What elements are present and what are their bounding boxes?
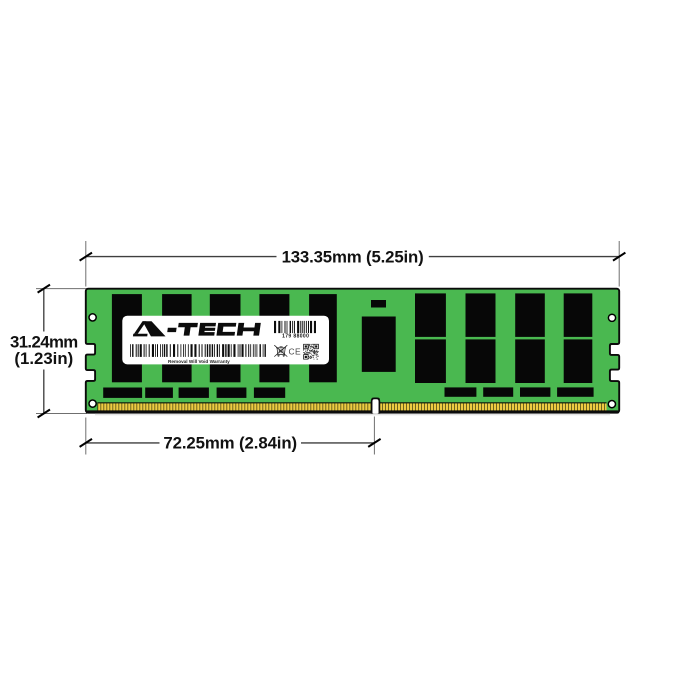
svg-text:Removal Will Void Warranty: Removal Will Void Warranty [168,359,230,364]
svg-text:72.25mm (2.84in): 72.25mm (2.84in) [163,434,297,453]
svg-text:(1.23in): (1.23in) [14,349,73,368]
svg-text:179 88000: 179 88000 [282,333,309,339]
svg-text:CE: CE [288,346,301,356]
svg-text:133.35mm (5.25in): 133.35mm (5.25in) [282,247,424,266]
